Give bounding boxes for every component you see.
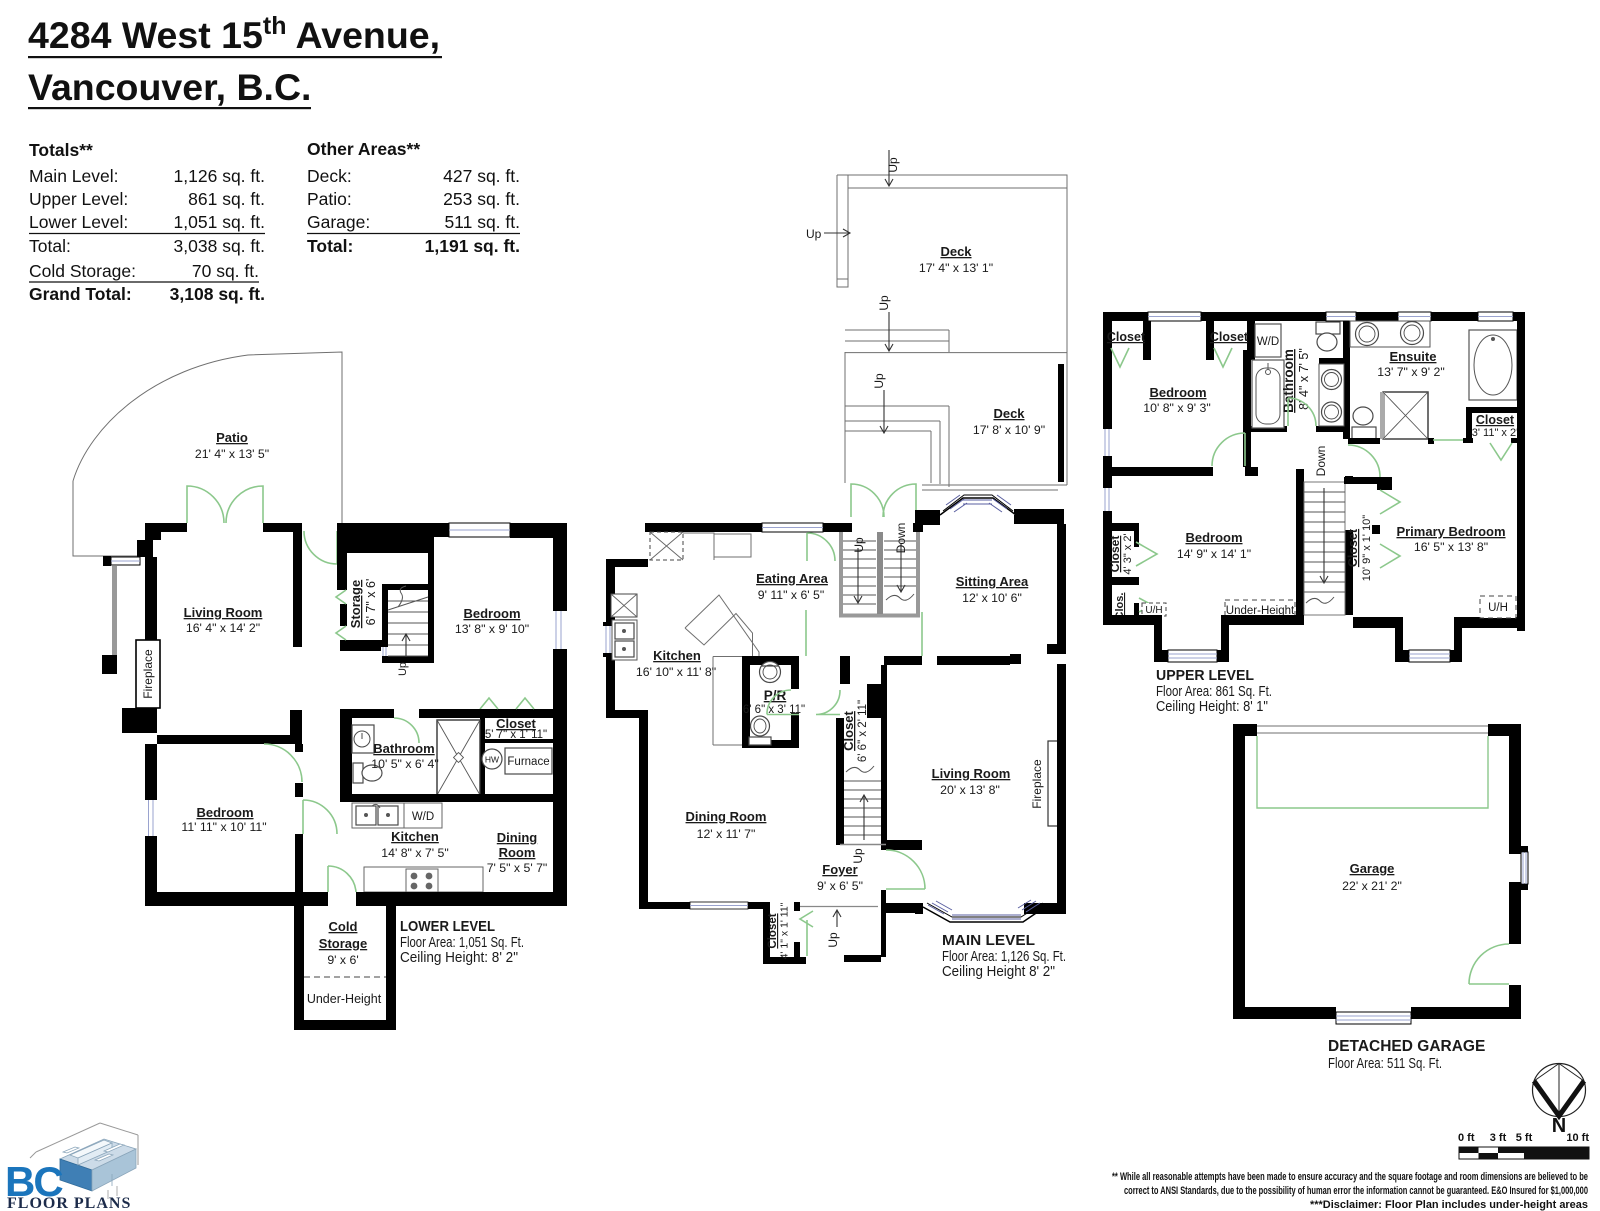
svg-text:4' 3" x 2': 4' 3" x 2' xyxy=(1122,533,1134,574)
svg-text:12' x 10' 6": 12' x 10' 6" xyxy=(962,591,1022,605)
svg-text:9' x 6': 9' x 6' xyxy=(327,953,358,967)
svg-text:Floor Area: 861 Sq. Ft.: Floor Area: 861 Sq. Ft. xyxy=(1156,684,1272,700)
svg-text:DETACHED GARAGE: DETACHED GARAGE xyxy=(1328,1038,1485,1055)
svg-text:Up: Up xyxy=(872,373,886,389)
svg-text:13' 7" x 9' 2": 13' 7" x 9' 2" xyxy=(1377,365,1444,379)
svg-text:Primary Bedroom: Primary Bedroom xyxy=(1396,524,1505,539)
svg-text:3,038 sq. ft.: 3,038 sq. ft. xyxy=(174,236,265,256)
svg-text:0 ft: 0 ft xyxy=(1458,1132,1475,1144)
svg-text:Bedroom: Bedroom xyxy=(1185,530,1242,545)
svg-text:Furnace: Furnace xyxy=(507,756,549,768)
svg-text:Under-Height: Under-Height xyxy=(307,992,382,1006)
svg-text:Ensuite: Ensuite xyxy=(1390,349,1437,364)
svg-text:Kitchen: Kitchen xyxy=(653,648,701,663)
svg-text:Lower Level:: Lower Level: xyxy=(29,212,128,232)
svg-text:Down: Down xyxy=(894,523,908,554)
svg-text:Bathroom: Bathroom xyxy=(373,741,434,756)
svg-text:Deck: Deck xyxy=(993,406,1025,421)
svg-text:Dining: Dining xyxy=(497,830,537,845)
svg-text:7' 5" x 5' 7": 7' 5" x 5' 7" xyxy=(487,861,548,875)
svg-text:20' x 13' 8": 20' x 13' 8" xyxy=(940,783,1000,797)
svg-text:U/H: U/H xyxy=(1488,602,1508,614)
svg-text:Storage: Storage xyxy=(319,936,367,951)
svg-text:Patio: Patio xyxy=(216,430,248,445)
svg-text:9' x 6' 5": 9' x 6' 5" xyxy=(817,879,863,893)
svg-text:Ceiling Height: 8' 2": Ceiling Height: 8' 2" xyxy=(400,950,518,966)
svg-text:correct to ANSI Standards, due: correct to ANSI Standards, due to the po… xyxy=(1124,1185,1588,1197)
svg-text:Living Room: Living Room xyxy=(184,605,263,620)
svg-text:6' 7" x 6': 6' 7" x 6' xyxy=(364,579,378,626)
svg-text:16' 10" x 11' 8": 16' 10" x 11' 8" xyxy=(636,665,716,679)
svg-text:Totals**: Totals** xyxy=(29,140,93,160)
svg-text:9' 11" x 6' 5": 9' 11" x 6' 5" xyxy=(758,588,825,602)
svg-text:Dining Room: Dining Room xyxy=(686,809,767,824)
svg-text:Up: Up xyxy=(852,537,866,553)
svg-text:1,051 sq. ft.: 1,051 sq. ft. xyxy=(174,212,265,232)
svg-text:HW: HW xyxy=(485,755,499,765)
svg-text:16' 5" x 13' 8": 16' 5" x 13' 8" xyxy=(1414,540,1488,554)
svg-text:16' 4" x 14' 2": 16' 4" x 14' 2" xyxy=(186,621,260,635)
svg-text:Down: Down xyxy=(1314,446,1328,477)
svg-text:Floor Area: 1,051 Sq. Ft.: Floor Area: 1,051 Sq. Ft. xyxy=(400,935,524,951)
svg-text:10' 8" x 9' 3": 10' 8" x 9' 3" xyxy=(1143,401,1210,415)
svg-text:Other Areas**: Other Areas** xyxy=(307,139,420,159)
svg-text:4' 1" x 1' 11": 4' 1" x 1' 11" xyxy=(779,902,791,959)
svg-text:70 sq. ft.: 70 sq. ft. xyxy=(192,261,259,281)
svg-text:3,108 sq. ft.: 3,108 sq. ft. xyxy=(170,284,265,304)
svg-text:Living Room: Living Room xyxy=(932,766,1011,781)
svg-text:Fireplace: Fireplace xyxy=(141,649,155,699)
svg-text:Floor Area: 1,126 Sq. Ft.: Floor Area: 1,126 Sq. Ft. xyxy=(942,949,1066,965)
svg-text:14' 9" x 14' 1": 14' 9" x 14' 1" xyxy=(1177,547,1251,561)
svg-text:Fireplace: Fireplace xyxy=(1030,759,1044,809)
svg-text:13' 8" x 9' 10": 13' 8" x 9' 10" xyxy=(455,622,529,636)
svg-text:11' 11" x 10' 11": 11' 11" x 10' 11" xyxy=(181,820,266,834)
svg-text:427 sq. ft.: 427 sq. ft. xyxy=(443,166,520,186)
svg-text:Foyer: Foyer xyxy=(822,862,857,877)
svg-text:Bedroom: Bedroom xyxy=(1149,385,1206,400)
svg-text:** While all reasonable attemp: ** While all reasonable attempts have be… xyxy=(1112,1171,1588,1183)
svg-text:Storage: Storage xyxy=(348,580,363,628)
svg-text:6' 6" x 2' 11": 6' 6" x 2' 11" xyxy=(857,700,869,762)
svg-text:Upper Level:: Upper Level: xyxy=(29,189,128,209)
svg-text:Deck:: Deck: xyxy=(307,166,352,186)
svg-text:861 sq. ft.: 861 sq. ft. xyxy=(188,189,265,209)
svg-text:Eating Area: Eating Area xyxy=(756,571,829,586)
svg-text:Floor Area: 511 Sq. Ft.: Floor Area: 511 Sq. Ft. xyxy=(1328,1056,1442,1072)
svg-text:U/H: U/H xyxy=(1145,605,1162,616)
svg-text:Garage:: Garage: xyxy=(307,212,370,232)
svg-text:10 ft: 10 ft xyxy=(1566,1132,1589,1144)
svg-text:Cold Storage:: Cold Storage: xyxy=(29,261,136,281)
svg-text:1,126 sq. ft.: 1,126 sq. ft. xyxy=(174,166,265,186)
svg-text:Total:: Total: xyxy=(29,236,71,256)
svg-text:Ceiling Height 8' 2": Ceiling Height 8' 2" xyxy=(942,964,1055,980)
svg-text:Cold: Cold xyxy=(329,919,358,934)
svg-text:Up: Up xyxy=(826,932,840,948)
svg-text:1,191 sq. ft.: 1,191 sq. ft. xyxy=(425,236,520,256)
svg-text:MAIN LEVEL: MAIN LEVEL xyxy=(942,932,1035,949)
svg-text:Up: Up xyxy=(397,662,409,676)
svg-text:Closet: Closet xyxy=(1108,536,1122,573)
svg-text:Patio:: Patio: xyxy=(307,189,352,209)
svg-text:5' 7" x 1' 11": 5' 7" x 1' 11" xyxy=(485,729,547,741)
svg-text:Grand Total:: Grand Total: xyxy=(29,284,132,304)
svg-text:Up: Up xyxy=(886,157,900,173)
svg-text:Room: Room xyxy=(499,845,536,860)
svg-text:***Disclaimer: Floor Plan incl: ***Disclaimer: Floor Plan includes under… xyxy=(1310,1199,1588,1211)
svg-text:Vancouver, B.C.: Vancouver, B.C. xyxy=(28,66,311,108)
svg-text:Kitchen: Kitchen xyxy=(391,829,439,844)
svg-text:Deck: Deck xyxy=(940,244,972,259)
svg-text:FLOOR PLANS: FLOOR PLANS xyxy=(7,1195,131,1211)
svg-text:21' 4" x 13' 5": 21' 4" x 13' 5" xyxy=(195,447,269,461)
svg-text:Sitting Area: Sitting Area xyxy=(956,574,1029,589)
svg-text:4284 West 15th Avenue,: 4284 West 15th Avenue, xyxy=(28,12,440,56)
svg-text:511 sq. ft.: 511 sq. ft. xyxy=(444,212,520,232)
svg-text:Up: Up xyxy=(806,227,822,241)
svg-text:LOWER LEVEL: LOWER LEVEL xyxy=(400,918,495,935)
svg-text:UPPER LEVEL: UPPER LEVEL xyxy=(1156,667,1254,684)
svg-text:14' 8" x 7' 5": 14' 8" x 7' 5" xyxy=(381,846,448,860)
svg-text:3 ft: 3 ft xyxy=(1490,1132,1507,1144)
svg-text:Bedroom: Bedroom xyxy=(463,606,520,621)
svg-text:N: N xyxy=(1552,1115,1566,1137)
svg-text:17' 8' x 10' 9": 17' 8' x 10' 9" xyxy=(973,423,1045,437)
svg-text:Closet: Closet xyxy=(767,913,779,948)
svg-text:10' 5" x 6' 4": 10' 5" x 6' 4" xyxy=(371,757,438,771)
svg-text:Closet: Closet xyxy=(1210,330,1249,344)
svg-text:22' x 21' 2": 22' x 21' 2" xyxy=(1342,879,1402,893)
svg-text:Ceiling Height: 8' 1": Ceiling Height: 8' 1" xyxy=(1156,699,1268,715)
svg-text:Closet: Closet xyxy=(1107,330,1146,344)
svg-text:Closet: Closet xyxy=(1346,528,1360,567)
svg-text:12' x 11' 7": 12' x 11' 7" xyxy=(697,827,756,841)
svg-text:Up: Up xyxy=(877,295,891,311)
svg-text:W/D: W/D xyxy=(1257,336,1279,348)
svg-text:5 ft: 5 ft xyxy=(1516,1132,1533,1144)
svg-text:Main Level:: Main Level: xyxy=(29,166,119,186)
svg-text:W/D: W/D xyxy=(412,811,434,823)
svg-text:10' 9" x 1' 10": 10' 9" x 1' 10" xyxy=(1361,515,1373,582)
svg-text:253 sq. ft.: 253 sq. ft. xyxy=(443,189,520,209)
svg-text:Garage: Garage xyxy=(1350,861,1395,876)
svg-text:17' 4" x 13' 1": 17' 4" x 13' 1" xyxy=(919,261,993,275)
svg-text:Total:: Total: xyxy=(307,236,353,256)
svg-text:Bedroom: Bedroom xyxy=(196,805,253,820)
svg-text:3' 11" x 2': 3' 11" x 2' xyxy=(1472,427,1518,439)
svg-text:Closet: Closet xyxy=(1476,413,1515,427)
